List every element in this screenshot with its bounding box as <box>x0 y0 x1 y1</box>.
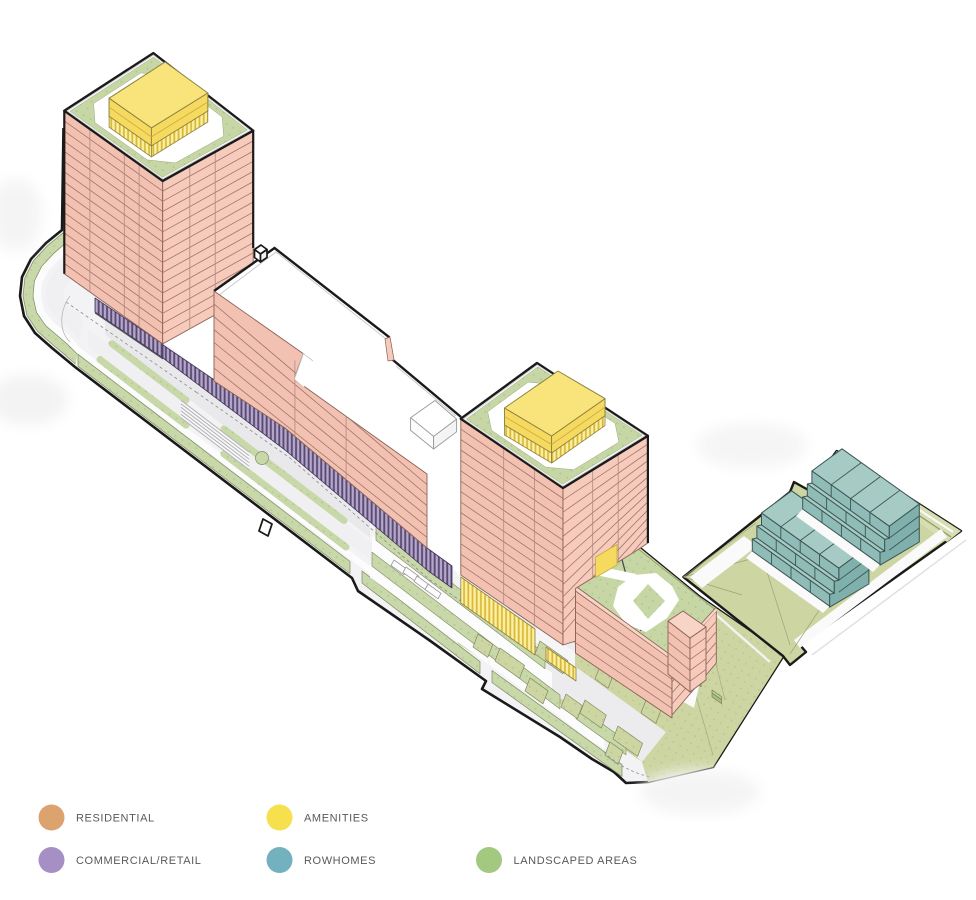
svg-text:LANDSCAPED AREAS: LANDSCAPED AREAS <box>514 855 638 867</box>
svg-text:COMMERCIAL/RETAIL: COMMERCIAL/RETAIL <box>76 855 202 867</box>
svg-text:AMENITIES: AMENITIES <box>304 813 369 825</box>
svg-text:RESIDENTIAL: RESIDENTIAL <box>76 813 155 825</box>
svg-text:ROWHOMES: ROWHOMES <box>304 855 376 867</box>
